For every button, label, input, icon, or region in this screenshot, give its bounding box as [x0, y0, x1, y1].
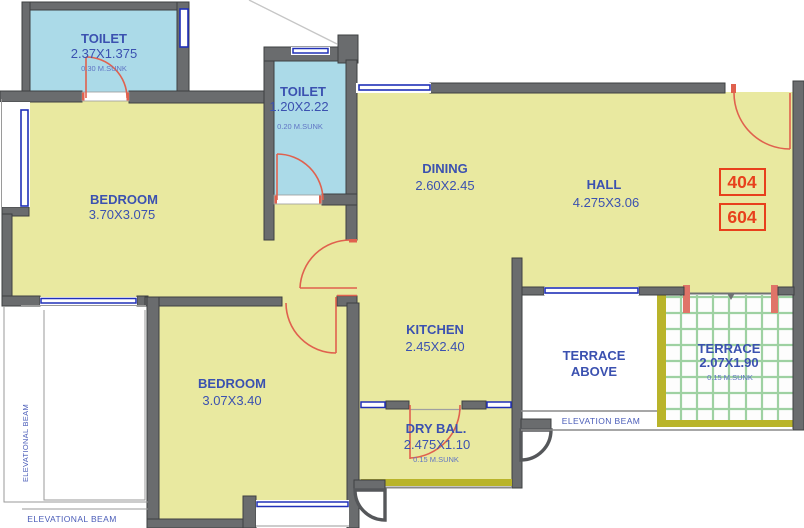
svg-text:HALL: HALL: [587, 177, 622, 192]
svg-text:4.275X3.06: 4.275X3.06: [573, 195, 640, 210]
svg-text:1.20X2.22: 1.20X2.22: [269, 99, 328, 114]
svg-text:2.37X1.375: 2.37X1.375: [71, 46, 138, 61]
svg-text:ELEVATIONAL BEAM: ELEVATIONAL BEAM: [27, 514, 116, 524]
svg-text:DRY BAL.: DRY BAL.: [406, 421, 467, 436]
svg-text:0.30 M.SUNK: 0.30 M.SUNK: [81, 64, 127, 73]
svg-text:KITCHEN: KITCHEN: [406, 322, 464, 337]
svg-text:TOILET: TOILET: [280, 84, 326, 99]
svg-text:2.475X1.10: 2.475X1.10: [404, 437, 471, 452]
svg-text:604: 604: [727, 207, 756, 227]
svg-text:0.15 M.SUNK: 0.15 M.SUNK: [413, 455, 459, 464]
svg-text:2.07X1.90: 2.07X1.90: [699, 355, 758, 370]
svg-text:DINING: DINING: [422, 161, 468, 176]
svg-text:ABOVE: ABOVE: [571, 364, 618, 379]
svg-text:TOILET: TOILET: [81, 31, 127, 46]
svg-text:0.15 M.SUNK: 0.15 M.SUNK: [707, 373, 753, 382]
svg-text:2.45X2.40: 2.45X2.40: [405, 339, 464, 354]
svg-text:BEDROOM: BEDROOM: [90, 192, 158, 207]
svg-text:3.07X3.40: 3.07X3.40: [202, 393, 261, 408]
svg-text:404: 404: [727, 172, 756, 192]
svg-text:ELEVATION BEAM: ELEVATION BEAM: [562, 416, 641, 426]
svg-text:3.70X3.075: 3.70X3.075: [89, 207, 156, 222]
svg-text:BEDROOM: BEDROOM: [198, 376, 266, 391]
svg-text:2.60X2.45: 2.60X2.45: [415, 178, 474, 193]
svg-text:ELEVATIONAL BEAM: ELEVATIONAL BEAM: [21, 404, 30, 482]
svg-text:0.20 M.SUNK: 0.20 M.SUNK: [277, 122, 323, 131]
svg-text:TERRACE: TERRACE: [563, 348, 626, 363]
svg-text:TERRACE: TERRACE: [698, 341, 761, 356]
